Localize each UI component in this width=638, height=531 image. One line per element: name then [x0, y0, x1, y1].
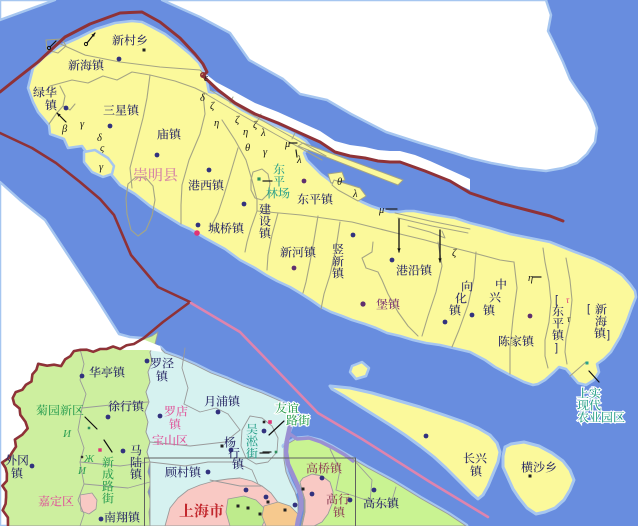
svg-text:μ: μ [284, 139, 290, 150]
svg-text:θ: θ [245, 143, 250, 154]
svg-text:]: ] [555, 342, 558, 354]
svg-text:ζ: ζ [253, 120, 258, 131]
svg-text:λ: λ [352, 189, 358, 200]
svg-text:[: [ [555, 294, 558, 306]
svg-text:λ: λ [296, 155, 302, 166]
svg-text:]: ] [607, 329, 610, 341]
svg-text:Ж: Ж [83, 453, 95, 465]
svg-text:ζ: ζ [452, 248, 457, 259]
svg-text:ς: ς [100, 143, 105, 154]
svg-text:λ: λ [260, 128, 266, 139]
svg-text:η: η [528, 273, 533, 284]
svg-text:ζ: ζ [210, 101, 215, 112]
svg-text:И: И [62, 428, 72, 440]
svg-text:β: β [61, 124, 68, 135]
svg-text:θ: θ [337, 177, 342, 188]
svg-text:η: η [214, 118, 219, 129]
svg-text:μ: μ [378, 205, 384, 216]
svg-text:И: И [77, 465, 87, 477]
svg-text:ζ: ζ [235, 115, 240, 126]
svg-text:η: η [243, 127, 248, 138]
svg-text:[: [ [587, 303, 590, 315]
